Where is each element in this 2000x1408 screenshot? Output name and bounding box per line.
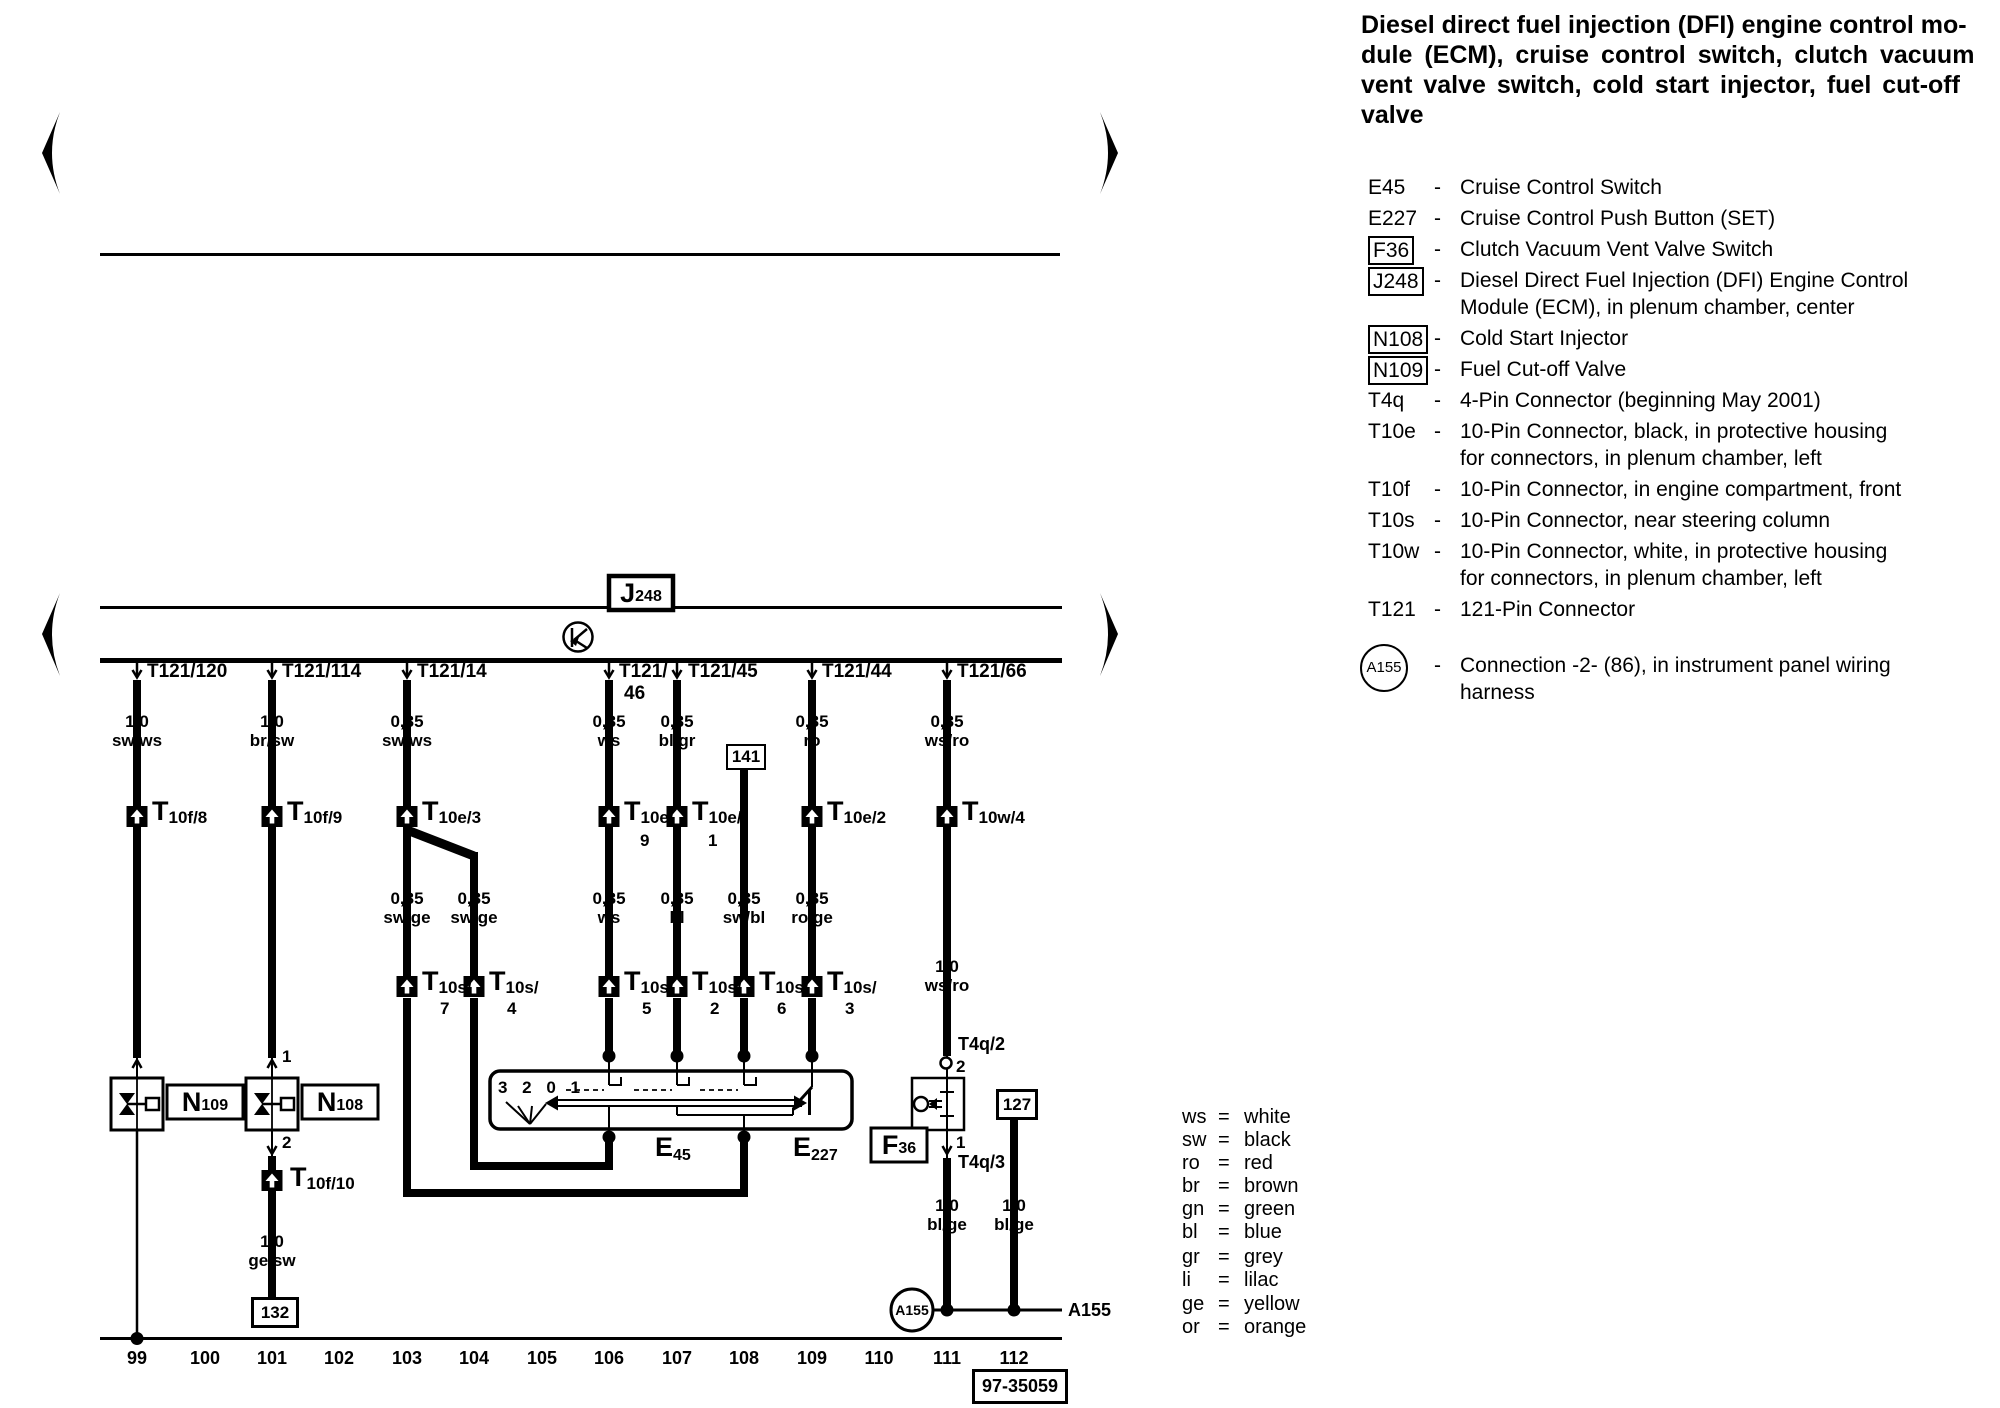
connector-pin-number: 7 xyxy=(440,1000,449,1017)
pin-label-t121-66: T121/66 xyxy=(957,661,1027,682)
connector-pin-number: 1 xyxy=(708,832,717,849)
connector-label-t10f8: T10f/8 xyxy=(152,798,207,825)
wiring-diagram-page: J248 T121/120 T121/114 T121/14 T121/ 46 … xyxy=(0,0,2000,1408)
n108-pin-1: 1 xyxy=(282,1048,291,1065)
n108-pin-2: 2 xyxy=(282,1134,291,1151)
connector-label-t10s6: T10s/ xyxy=(759,968,809,995)
legend-item-t10f: T10f- 10-Pin Connector, in engine compar… xyxy=(1368,476,1901,503)
connector-label-t10e1: T10e/ xyxy=(692,798,742,825)
wires xyxy=(133,680,1018,1310)
wire-label: 0,35ws xyxy=(592,889,625,927)
connector-label-t10e9: T10e/ xyxy=(624,798,674,825)
connector-label-t10s5: T10s/ xyxy=(624,968,674,995)
color-code-ge: ge=yellow xyxy=(1182,1293,1300,1315)
track-number: 109 xyxy=(797,1348,827,1369)
connector-label-t10f10: T10f/10 xyxy=(290,1164,355,1191)
legend-item-e45: E45- Cruise Control Switch xyxy=(1368,174,1662,201)
pin-label-t121-46b: 46 xyxy=(624,683,645,704)
legend-item-t10w: T10w- 10-Pin Connector, white, in protec… xyxy=(1368,538,1887,592)
f36-label: F36 xyxy=(871,1129,927,1161)
wire-label: 0,35bl xyxy=(660,889,693,927)
connector-label-t10s3: T10s/ xyxy=(827,968,877,995)
top-rule xyxy=(100,253,1060,256)
track-number: 108 xyxy=(729,1348,759,1369)
n109-label: N109 xyxy=(167,1086,243,1118)
track-number: 107 xyxy=(662,1348,692,1369)
track-number: 100 xyxy=(190,1348,220,1369)
track-ref-141: 141 xyxy=(726,744,766,770)
wire-label: 1,0sw/ws xyxy=(112,712,162,750)
connector-pin-number: 9 xyxy=(640,832,649,849)
wire-label: 0,35sw/ge xyxy=(450,889,497,927)
ecm-j248-label: J248 xyxy=(609,577,673,609)
t4q2-label: T4q/2 xyxy=(958,1036,1005,1053)
page-turn-arrow-icons xyxy=(42,112,1118,676)
track-ref-132: 132 xyxy=(251,1297,299,1328)
connector-label-t10s4: T10s/ xyxy=(489,968,539,995)
wire-label: 1,0bl/ge xyxy=(927,1196,967,1234)
diagram-code: 97-35059 xyxy=(972,1369,1068,1404)
connector-label-t10f9: T10f/9 xyxy=(287,798,342,825)
connector-pin-number: 6 xyxy=(777,1000,786,1017)
track-number: 101 xyxy=(257,1348,287,1369)
a155-circle-label: A155 xyxy=(891,1302,933,1319)
track-number: 106 xyxy=(594,1348,624,1369)
k-connection-icon xyxy=(564,623,593,652)
color-code-ws: ws=white xyxy=(1182,1106,1291,1128)
current-track-line xyxy=(100,1332,1062,1345)
wire-label: 0,35sw/bl xyxy=(723,889,766,927)
legend-item-f36: F36- Clutch Vacuum Vent Valve Switch xyxy=(1368,236,1773,265)
connector-pin-number: 4 xyxy=(507,1000,516,1017)
track-number: 112 xyxy=(999,1348,1028,1369)
pin-label-t121-45: T121/45 xyxy=(688,661,758,682)
legend-item-t10e: T10e- 10-Pin Connector, black, in protec… xyxy=(1368,418,1887,472)
pin-label-t121-14: T121/14 xyxy=(417,661,487,682)
wire-label: 0,35ws/ro xyxy=(925,712,969,750)
page-title: Diesel direct fuel injection (DFI) engin… xyxy=(1361,10,2000,130)
connector-label-t10e3: T10e/3 xyxy=(422,798,481,825)
wire-label: 0,35ro/ge xyxy=(791,889,833,927)
pin-label-t121-114: T121/114 xyxy=(282,661,361,682)
track-number: 104 xyxy=(459,1348,489,1369)
connector-label-t10s7: T10s/ xyxy=(422,968,472,995)
wire-label: 1,0ws/ro xyxy=(925,957,969,995)
wire-label: 0,35ro xyxy=(795,712,828,750)
track-number: 103 xyxy=(392,1348,422,1369)
track-number: 102 xyxy=(324,1348,354,1369)
legend-item-t10s: T10s- 10-Pin Connector, near steering co… xyxy=(1368,507,1830,534)
legend-item-a155: A155- Connection -2- (86), in instrument… xyxy=(1360,652,1891,706)
connector-pin-number: 5 xyxy=(642,1000,651,1017)
track-number: 99 xyxy=(127,1348,147,1369)
color-code-li: li=lilac xyxy=(1182,1269,1278,1291)
color-code-or: or=orange xyxy=(1182,1316,1306,1338)
color-code-sw: sw=black xyxy=(1182,1129,1291,1151)
connector-label-t10s2: T10s/ xyxy=(692,968,742,995)
legend-item-j248: J248- Diesel Direct Fuel Injection (DFI)… xyxy=(1368,267,1908,321)
track-number: 105 xyxy=(527,1348,557,1369)
track-ref-127: 127 xyxy=(996,1089,1038,1120)
t4q3-label: T4q/3 xyxy=(958,1154,1005,1171)
pin-label-t121-44: T121/44 xyxy=(822,661,892,682)
pin-label-t121-120: T121/120 xyxy=(147,661,227,682)
color-code-ro: ro=red xyxy=(1182,1152,1273,1174)
wire-label: 0,35sw/ws xyxy=(382,712,432,750)
connector-pin-number: 3 xyxy=(845,1000,854,1017)
legend-item-n108: N108- Cold Start Injector xyxy=(1368,325,1628,354)
pin-label-t121-46a: T121/ xyxy=(619,661,668,682)
switch-positions-label: 3 2 0 1 xyxy=(498,1078,585,1098)
connector-label-t10w4: T10w/4 xyxy=(962,798,1025,825)
ecm-bus-band xyxy=(100,576,1062,663)
wire-label: 0,35ws xyxy=(592,712,625,750)
legend-item-e227: E227- Cruise Control Push Button (SET) xyxy=(1368,205,1775,232)
t4q2-pin: 2 xyxy=(956,1058,965,1075)
color-code-br: br=brown xyxy=(1182,1175,1298,1197)
t4q3-pin: 1 xyxy=(956,1134,965,1151)
color-code-gr: gr=grey xyxy=(1182,1246,1283,1268)
wire-label: 1,0ge/sw xyxy=(248,1232,295,1270)
a155-line-label: A155 xyxy=(1068,1302,1111,1319)
n108-label: N108 xyxy=(302,1086,378,1118)
track-number: 111 xyxy=(933,1348,961,1369)
legend-item-t4q: T4q- 4-Pin Connector (beginning May 2001… xyxy=(1368,387,1821,414)
color-code-gn: gn=green xyxy=(1182,1198,1295,1220)
wire-label: 0,35sw/ge xyxy=(383,889,430,927)
wire-label: 1,0br/sw xyxy=(250,712,294,750)
wire-label: 1,0bl/ge xyxy=(994,1196,1034,1234)
color-code-bl: bl=blue xyxy=(1182,1221,1282,1243)
wire-label: 0,35bl/gr xyxy=(659,712,696,750)
connector-label-t10e2: T10e/2 xyxy=(827,798,886,825)
connector-pin-number: 2 xyxy=(710,1000,719,1017)
legend-item-t121: T121- 121-Pin Connector xyxy=(1368,596,1635,623)
legend-item-n109: N109- Fuel Cut-off Valve xyxy=(1368,356,1626,385)
e227-label: E227 xyxy=(793,1134,838,1161)
track-number: 110 xyxy=(864,1348,893,1369)
e45-label: E45 xyxy=(655,1134,691,1161)
